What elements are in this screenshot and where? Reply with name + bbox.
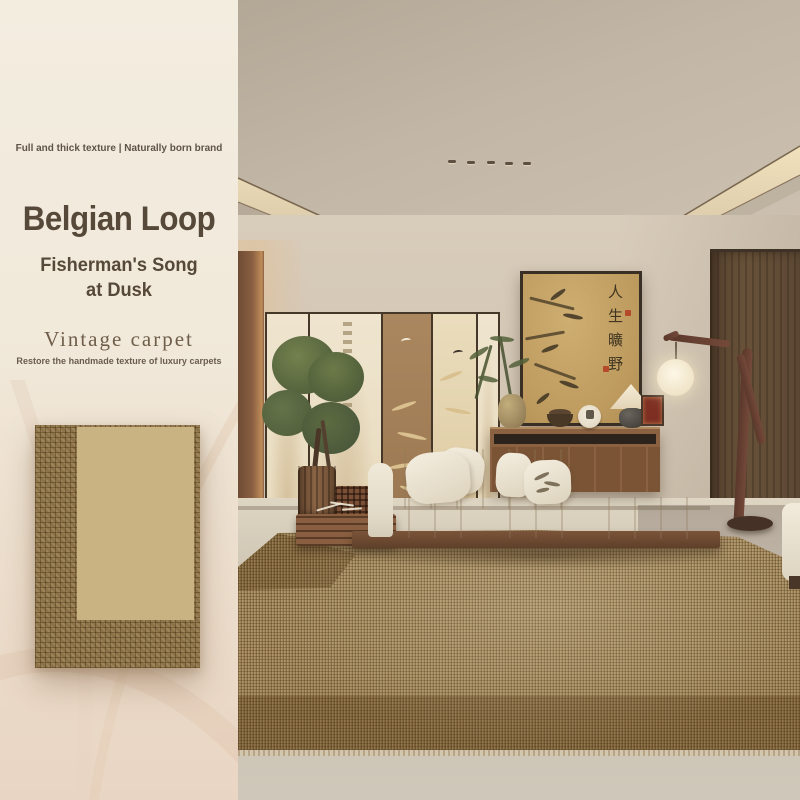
- downlight-icon: [523, 162, 531, 165]
- stump-planter: [298, 466, 336, 520]
- throw-pillow: [404, 449, 472, 505]
- red-seal-icon: [603, 366, 609, 372]
- product-subtitle: Fisherman's Song at Dusk: [33, 254, 206, 303]
- sideboard-recess: [494, 434, 656, 444]
- collection-name: Vintage carpet: [0, 327, 238, 352]
- framed-picture: [641, 395, 664, 426]
- wood-door: [710, 249, 800, 521]
- bird-icon: [401, 337, 412, 344]
- carpet-ad-poster: Full and thick texture | Naturally born …: [0, 0, 800, 800]
- brand-tagline: Full and thick texture | Naturally born …: [6, 142, 232, 154]
- plate-ink-mark: [586, 410, 594, 419]
- downlight-icon: [487, 161, 495, 164]
- product-title: Belgian Loop: [10, 200, 229, 239]
- downlight-icon: [448, 160, 456, 163]
- ceramic-vase: [498, 394, 526, 428]
- paper-lantern: [657, 359, 694, 396]
- collection-description: Restore the handmade texture of luxury c…: [6, 356, 232, 367]
- ottoman-leg: [789, 576, 800, 589]
- rug-swatch-center-field: [77, 427, 194, 620]
- red-seal-icon: [625, 310, 631, 316]
- indoor-tree-foliage: [302, 402, 360, 454]
- living-room-photo: 人生曠野: [238, 0, 800, 800]
- bird-icon: [453, 349, 464, 356]
- info-panel: Full and thick texture | Naturally born …: [0, 0, 238, 800]
- ottoman: [782, 503, 800, 581]
- downlight-icon: [467, 161, 475, 164]
- sofa-chaise: [584, 497, 708, 539]
- indoor-tree-foliage: [308, 352, 364, 402]
- rug-swatch: [35, 425, 200, 668]
- branch-lamp-base: [727, 516, 773, 531]
- downlight-icon: [505, 162, 513, 165]
- patterned-pillow: [523, 459, 572, 505]
